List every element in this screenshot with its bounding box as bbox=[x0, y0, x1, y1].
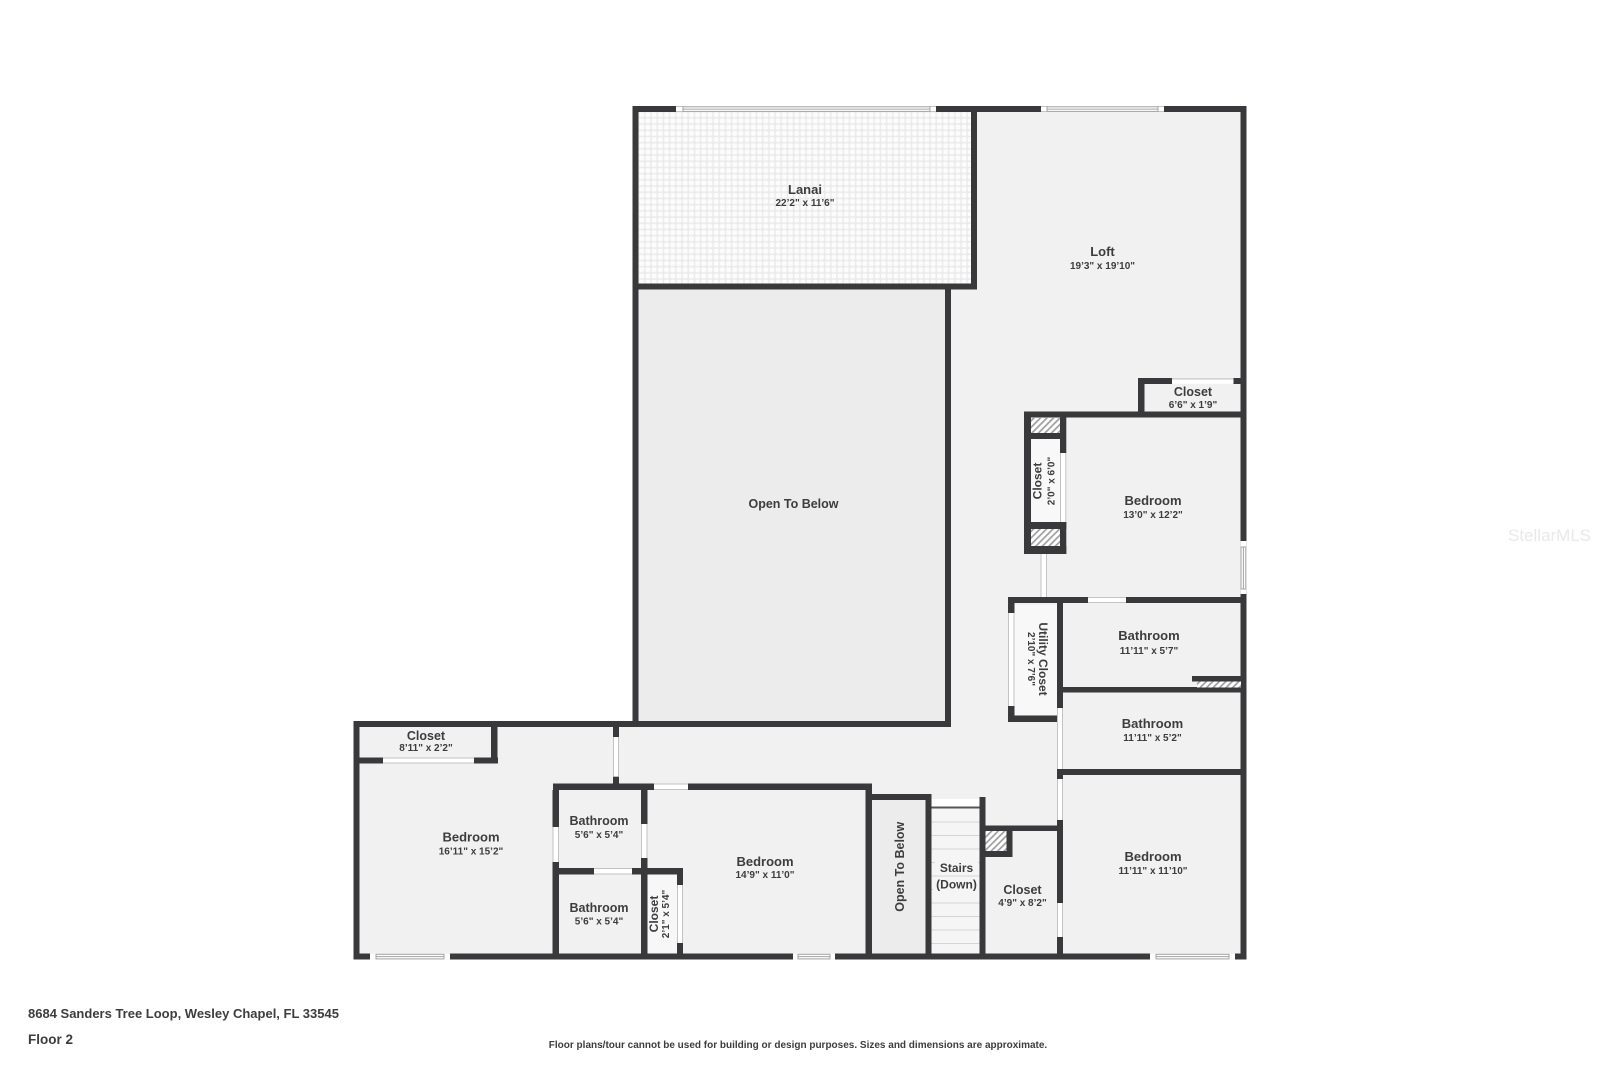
svg-text:StellarMLS: StellarMLS bbox=[1508, 526, 1591, 545]
svg-text:16’11" x 15’2": 16’11" x 15’2" bbox=[439, 847, 504, 858]
svg-text:11’11" x 5’7": 11’11" x 5’7" bbox=[1120, 646, 1179, 657]
svg-text:Bathroom: Bathroom bbox=[569, 901, 628, 915]
svg-text:(Down): (Down) bbox=[936, 878, 977, 892]
svg-text:2’10" x 7’6": 2’10" x 7’6" bbox=[1025, 632, 1036, 686]
svg-text:Bathroom: Bathroom bbox=[1118, 628, 1179, 643]
svg-text:8684 Sanders Tree Loop, Wesley: 8684 Sanders Tree Loop, Wesley Chapel, F… bbox=[28, 1006, 339, 1021]
svg-text:Closet: Closet bbox=[1003, 883, 1042, 897]
svg-text:13’0" x 12’2": 13’0" x 12’2" bbox=[1123, 510, 1183, 521]
svg-text:Open To Below: Open To Below bbox=[748, 497, 838, 511]
svg-text:Lanai: Lanai bbox=[788, 182, 822, 197]
svg-text:Floor plans/tour cannot be use: Floor plans/tour cannot be used for buil… bbox=[549, 1040, 1048, 1051]
svg-text:19’3" x 19’10": 19’3" x 19’10" bbox=[1070, 261, 1135, 272]
svg-text:Loft: Loft bbox=[1090, 244, 1115, 259]
svg-text:Bedroom: Bedroom bbox=[736, 854, 793, 869]
svg-text:Bathroom: Bathroom bbox=[1122, 716, 1183, 731]
svg-text:Open To Below: Open To Below bbox=[893, 821, 907, 911]
svg-text:Bedroom: Bedroom bbox=[1124, 493, 1181, 508]
svg-text:Floor 2: Floor 2 bbox=[28, 1032, 73, 1047]
svg-text:2’0" x 6’0": 2’0" x 6’0" bbox=[1047, 457, 1058, 506]
svg-text:Closet: Closet bbox=[647, 896, 661, 933]
svg-text:2’1" x 5’4": 2’1" x 5’4" bbox=[661, 890, 672, 939]
svg-text:11’11" x 11’10": 11’11" x 11’10" bbox=[1119, 866, 1188, 877]
svg-text:8’11" x 2’2": 8’11" x 2’2" bbox=[399, 743, 453, 754]
svg-text:5’6" x 5’4": 5’6" x 5’4" bbox=[575, 830, 624, 841]
svg-text:Utility Closet: Utility Closet bbox=[1036, 622, 1050, 695]
svg-text:5’6" x 5’4": 5’6" x 5’4" bbox=[575, 917, 624, 928]
svg-text:22’2" x 11’6": 22’2" x 11’6" bbox=[776, 198, 835, 209]
svg-text:11’11" x 5’2": 11’11" x 5’2" bbox=[1123, 733, 1182, 744]
svg-text:Bedroom: Bedroom bbox=[1124, 849, 1181, 864]
svg-text:Closet: Closet bbox=[1031, 463, 1045, 500]
svg-text:14’9" x 11’0": 14’9" x 11’0" bbox=[736, 870, 795, 881]
svg-text:4’9" x 8’2": 4’9" x 8’2" bbox=[998, 898, 1047, 909]
svg-text:6’6" x 1’9": 6’6" x 1’9" bbox=[1169, 400, 1218, 411]
svg-text:Closet: Closet bbox=[1174, 385, 1213, 399]
svg-text:Bathroom: Bathroom bbox=[569, 814, 628, 828]
svg-text:Closet: Closet bbox=[407, 729, 446, 743]
svg-text:Bedroom: Bedroom bbox=[442, 830, 499, 845]
svg-text:Stairs: Stairs bbox=[940, 861, 974, 875]
